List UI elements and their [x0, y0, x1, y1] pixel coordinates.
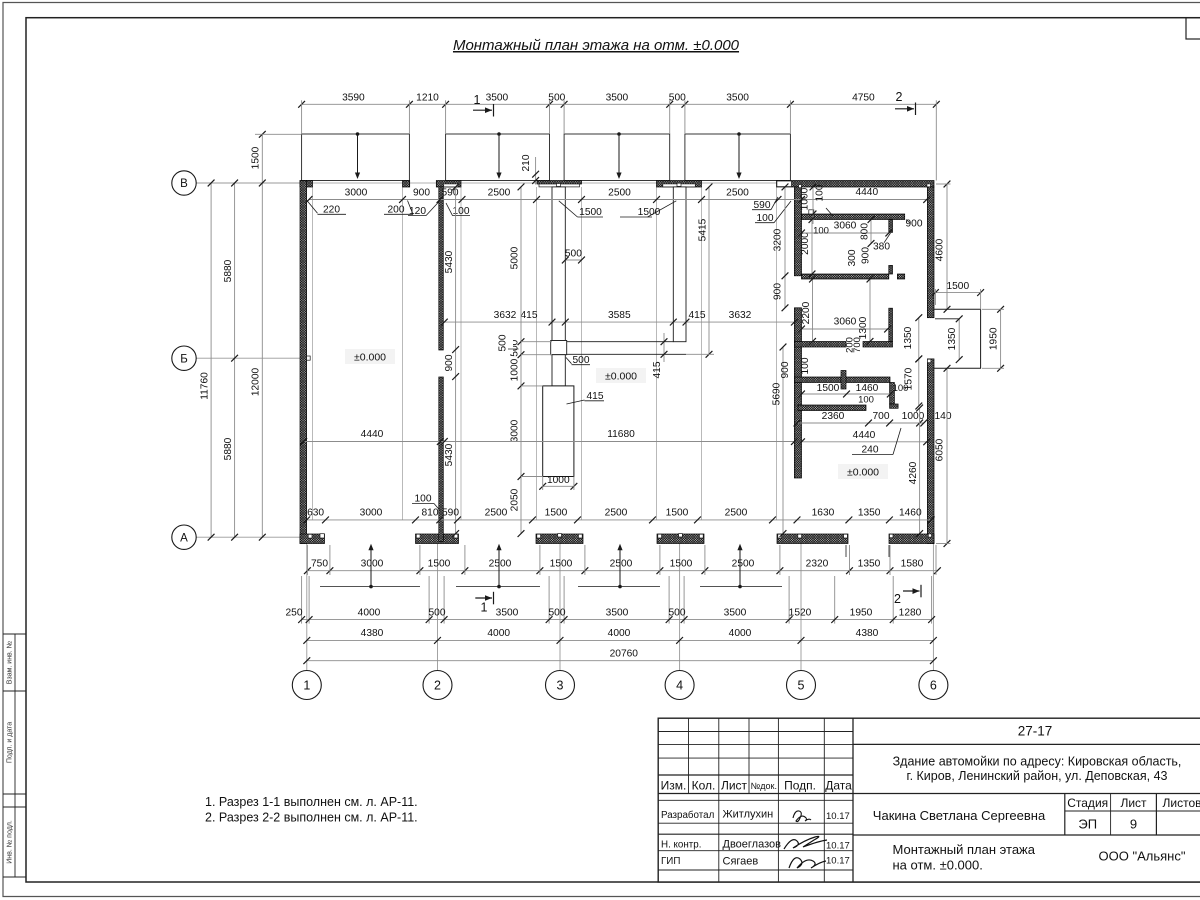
svg-text:3200: 3200	[773, 228, 784, 251]
svg-text:415: 415	[689, 310, 706, 321]
svg-text:В: В	[180, 178, 188, 190]
svg-text:1000: 1000	[902, 411, 925, 422]
svg-text:ГИП: ГИП	[661, 856, 680, 867]
svg-text:±0.000: ±0.000	[354, 352, 386, 364]
svg-text:810: 810	[422, 508, 439, 519]
svg-text:1500: 1500	[666, 508, 689, 519]
svg-text:1. Разрез 1-1 выполнен см. л.: 1. Разрез 1-1 выполнен см. л. АР-11.	[205, 795, 418, 809]
svg-text:1460: 1460	[899, 508, 922, 519]
svg-text:3590: 3590	[342, 92, 365, 103]
svg-text:ЭП: ЭП	[1078, 817, 1097, 832]
svg-text:2320: 2320	[806, 559, 829, 570]
svg-text:3060: 3060	[834, 317, 857, 328]
svg-text:1000: 1000	[547, 475, 570, 486]
svg-text:5690: 5690	[771, 382, 782, 405]
svg-text:2500: 2500	[489, 559, 512, 570]
svg-text:1350: 1350	[903, 326, 914, 349]
svg-text:5430: 5430	[444, 250, 455, 273]
svg-text:700: 700	[873, 411, 890, 422]
svg-text:250: 250	[286, 607, 303, 618]
svg-text:1300: 1300	[858, 316, 869, 339]
svg-text:5880: 5880	[223, 259, 234, 282]
svg-text:2360: 2360	[822, 411, 845, 422]
svg-text:100: 100	[453, 206, 470, 217]
svg-text:1: 1	[481, 601, 488, 615]
svg-text:ООО "Альянс": ООО "Альянс"	[1099, 849, 1186, 864]
svg-text:4260: 4260	[908, 461, 919, 484]
svg-text:1630: 1630	[812, 508, 835, 519]
svg-text:Подп. и дата: Подп. и дата	[7, 722, 14, 763]
svg-text:±0.000: ±0.000	[605, 371, 637, 383]
svg-text:5000: 5000	[509, 246, 520, 269]
svg-text:3060: 3060	[834, 221, 857, 232]
svg-text:590: 590	[442, 188, 459, 199]
svg-text:4000: 4000	[487, 628, 510, 639]
svg-text:Подп.: Подп.	[784, 779, 816, 793]
svg-text:1520: 1520	[789, 607, 812, 618]
svg-text:3632: 3632	[729, 310, 752, 321]
svg-text:1950: 1950	[989, 327, 1000, 350]
svg-text:750: 750	[311, 559, 328, 570]
svg-text:2500: 2500	[485, 508, 508, 519]
svg-text:1350: 1350	[858, 559, 881, 570]
svg-text:500: 500	[429, 607, 446, 618]
svg-text:1500: 1500	[251, 146, 262, 169]
svg-text:Б: Б	[180, 353, 188, 365]
svg-text:№док.: №док.	[751, 781, 777, 791]
svg-text:Н. контр.: Н. контр.	[661, 840, 701, 851]
svg-text:4000: 4000	[729, 628, 752, 639]
svg-text:4380: 4380	[361, 628, 384, 639]
svg-text:2500: 2500	[610, 559, 633, 570]
svg-text:5880: 5880	[223, 437, 234, 460]
svg-text:1000: 1000	[800, 187, 811, 210]
svg-text:2: 2	[434, 679, 441, 693]
svg-text:Монтажный план этажа на отм. ±: Монтажный план этажа на отм. ±0.000	[453, 37, 740, 54]
svg-text:500: 500	[565, 249, 582, 260]
svg-text:900: 900	[413, 188, 430, 199]
svg-text:2500: 2500	[488, 188, 511, 199]
svg-text:3: 3	[557, 679, 564, 693]
svg-text:4000: 4000	[358, 607, 381, 618]
svg-text:900: 900	[444, 354, 455, 371]
svg-text:240: 240	[862, 445, 879, 456]
svg-text:4440: 4440	[361, 429, 384, 440]
svg-text:120: 120	[409, 206, 426, 217]
svg-text:11760: 11760	[200, 372, 211, 400]
svg-text:2000: 2000	[800, 232, 811, 255]
svg-text:4600: 4600	[935, 238, 946, 261]
svg-text:140: 140	[935, 411, 952, 422]
svg-text:5: 5	[798, 679, 805, 693]
svg-text:100: 100	[757, 213, 774, 224]
svg-text:5415: 5415	[697, 218, 708, 241]
svg-text:1: 1	[474, 93, 481, 107]
svg-text:3500: 3500	[606, 607, 629, 618]
svg-text:Дата: Дата	[825, 779, 852, 793]
svg-text:590: 590	[442, 508, 459, 519]
svg-text:2: 2	[896, 90, 903, 104]
svg-text:2500: 2500	[732, 559, 755, 570]
svg-text:3585: 3585	[608, 310, 631, 321]
svg-text:на отм. ±0.000.: на отм. ±0.000.	[893, 858, 983, 873]
svg-text:210: 210	[521, 154, 532, 171]
svg-text:630: 630	[307, 508, 324, 519]
svg-text:10.17: 10.17	[826, 811, 850, 822]
svg-text:100: 100	[800, 357, 811, 374]
svg-text:700: 700	[852, 337, 863, 353]
svg-text:1500: 1500	[545, 508, 568, 519]
svg-text:100: 100	[813, 226, 829, 237]
svg-text:100: 100	[415, 494, 432, 505]
svg-text:2500: 2500	[608, 188, 631, 199]
svg-text:Монтажный план этажа: Монтажный план этажа	[893, 842, 1036, 857]
svg-text:1500: 1500	[550, 559, 573, 570]
svg-text:10.17: 10.17	[826, 856, 850, 867]
svg-text:г. Киров, Ленинский район, ул.: г. Киров, Ленинский район, ул. Деповская…	[907, 769, 1168, 783]
svg-text:900: 900	[861, 247, 872, 264]
svg-text:220: 220	[323, 205, 340, 216]
svg-text:1460: 1460	[856, 383, 879, 394]
svg-text:100: 100	[815, 184, 826, 201]
svg-text:1500: 1500	[579, 207, 602, 218]
svg-text:11680: 11680	[607, 429, 635, 440]
svg-text:500: 500	[573, 355, 590, 366]
svg-text:1500: 1500	[946, 281, 969, 292]
svg-text:800: 800	[859, 223, 870, 240]
svg-text:2500: 2500	[726, 188, 749, 199]
svg-text:А: А	[180, 532, 188, 544]
svg-text:Стадия: Стадия	[1067, 796, 1108, 810]
svg-text:3500: 3500	[726, 92, 749, 103]
svg-text:2. Разрез 2-2 выполнен см. л.: 2. Разрез 2-2 выполнен см. л. АР-11.	[205, 811, 418, 825]
svg-text:1500: 1500	[638, 207, 661, 218]
svg-text:380: 380	[873, 242, 890, 253]
svg-text:Инв. № подл.: Инв. № подл.	[7, 820, 14, 864]
svg-text:27-17: 27-17	[1018, 724, 1053, 739]
svg-text:1350: 1350	[947, 327, 958, 350]
svg-text:1: 1	[303, 679, 310, 693]
svg-text:Чакина Светлана Сергеевна: Чакина Светлана Сергеевна	[873, 808, 1046, 823]
svg-text:500: 500	[498, 334, 509, 351]
svg-text:4440: 4440	[855, 187, 878, 198]
svg-text:900: 900	[906, 219, 923, 230]
svg-text:1350: 1350	[858, 508, 881, 519]
svg-text:10.17: 10.17	[826, 841, 850, 852]
svg-text:Кол.: Кол.	[692, 779, 716, 793]
svg-text:4: 4	[676, 679, 683, 693]
svg-text:1580: 1580	[901, 559, 924, 570]
svg-text:415: 415	[521, 310, 538, 321]
svg-text:9: 9	[1130, 817, 1137, 832]
svg-text:Двоеглазов: Двоеглазов	[723, 839, 782, 851]
svg-text:±0.000: ±0.000	[847, 467, 879, 479]
svg-text:500: 500	[669, 92, 686, 103]
svg-text:Здание автомойки по адресу: Ки: Здание автомойки по адресу: Кировская об…	[893, 755, 1182, 769]
svg-text:500: 500	[549, 607, 566, 618]
svg-text:4440: 4440	[853, 430, 876, 441]
svg-text:4380: 4380	[856, 628, 879, 639]
svg-text:300: 300	[847, 249, 858, 266]
svg-text:1280: 1280	[899, 607, 922, 618]
svg-text:200: 200	[388, 205, 405, 216]
svg-text:900: 900	[780, 361, 791, 378]
svg-text:Взам. инв. №: Взам. инв. №	[7, 641, 14, 684]
svg-text:100: 100	[893, 383, 909, 394]
svg-text:3000: 3000	[509, 419, 520, 442]
svg-text:4000: 4000	[608, 628, 631, 639]
svg-text:1500: 1500	[817, 383, 840, 394]
svg-text:Сягаев: Сягаев	[723, 856, 759, 868]
svg-text:1210: 1210	[416, 92, 439, 103]
svg-text:6050: 6050	[935, 438, 946, 461]
svg-text:415: 415	[652, 361, 663, 378]
svg-text:12000: 12000	[251, 368, 262, 397]
svg-text:2200: 2200	[801, 301, 812, 324]
svg-text:3632: 3632	[494, 310, 517, 321]
svg-text:2: 2	[894, 592, 901, 606]
svg-text:3500: 3500	[724, 607, 747, 618]
svg-text:3000: 3000	[361, 559, 384, 570]
svg-text:1500: 1500	[428, 559, 451, 570]
svg-text:3000: 3000	[360, 508, 383, 519]
svg-text:3000: 3000	[345, 188, 368, 199]
svg-text:6: 6	[930, 679, 937, 693]
svg-text:Изм.: Изм.	[661, 779, 687, 793]
svg-text:1500: 1500	[670, 559, 693, 570]
svg-text:Листов: Листов	[1163, 796, 1200, 810]
svg-text:2500: 2500	[605, 508, 628, 519]
svg-text:100: 100	[858, 395, 874, 406]
svg-text:900: 900	[773, 283, 784, 300]
svg-text:4750: 4750	[852, 92, 875, 103]
svg-text:3500: 3500	[496, 607, 519, 618]
svg-text:500: 500	[669, 607, 686, 618]
svg-text:20760: 20760	[610, 648, 639, 659]
svg-text:Разработал: Разработал	[661, 810, 715, 821]
svg-text:Лист: Лист	[721, 779, 748, 793]
svg-text:415: 415	[587, 391, 604, 402]
svg-text:2050: 2050	[509, 488, 520, 511]
svg-text:Лист: Лист	[1120, 796, 1147, 810]
svg-text:Житлухин: Житлухин	[723, 809, 774, 821]
svg-text:500: 500	[548, 92, 565, 103]
svg-text:3500: 3500	[606, 92, 629, 103]
svg-text:1000: 1000	[509, 358, 520, 381]
svg-text:1950: 1950	[850, 607, 873, 618]
svg-text:3500: 3500	[486, 92, 509, 103]
svg-text:2500: 2500	[725, 508, 748, 519]
svg-text:590: 590	[754, 200, 771, 211]
svg-text:5430: 5430	[444, 443, 455, 466]
